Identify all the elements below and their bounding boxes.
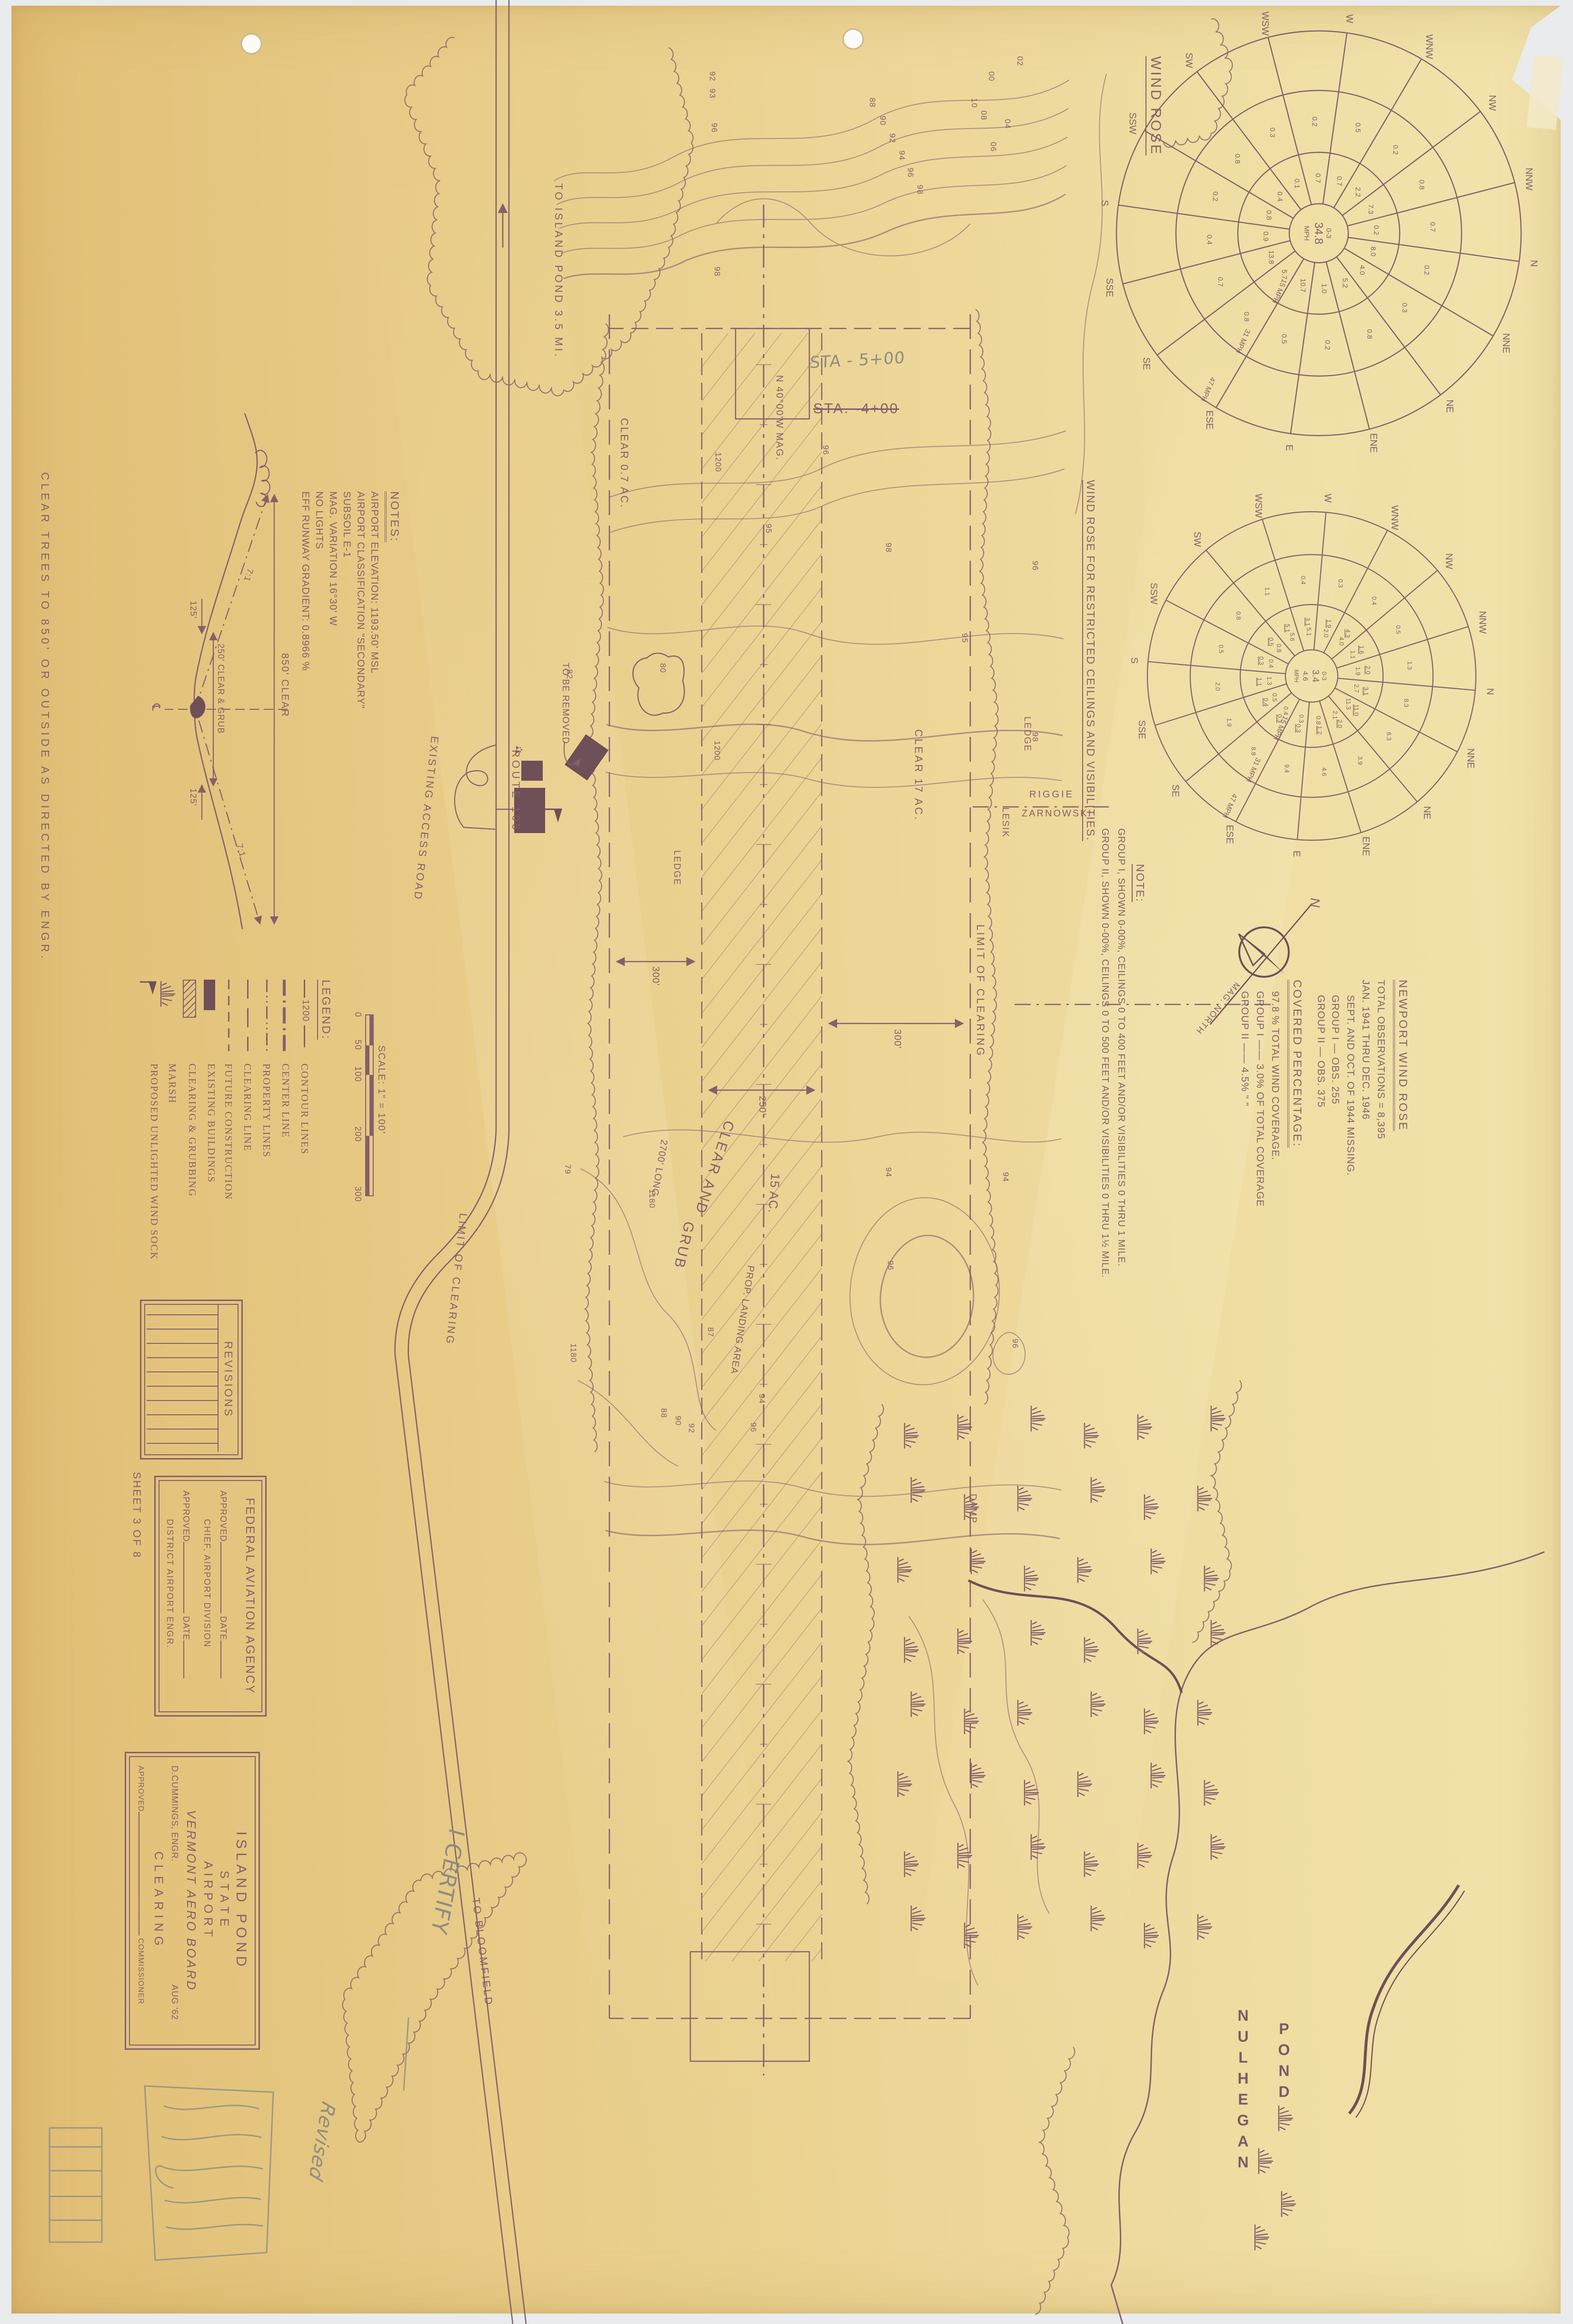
map-label: RIGGIE (1029, 789, 1074, 800)
scanned-drawing-sheet: NNNENEENEEESESESSESSSWSWWSWWWNWNWNNW15 M… (0, 0, 1573, 2324)
map-label: STA. -4+00 (813, 401, 899, 417)
portrait-annotation-layer: NULHEGAN POND STA - 5+00STA. -4+00RIGGIE… (0, 0, 1573, 2324)
pond-name-line2: POND (1275, 2020, 1293, 2104)
map-label: ZARNOWSKI (1022, 808, 1092, 819)
map-label: STA - 5+00 (809, 348, 906, 373)
pond-name-line1: NULHEGAN (1234, 2007, 1252, 2175)
